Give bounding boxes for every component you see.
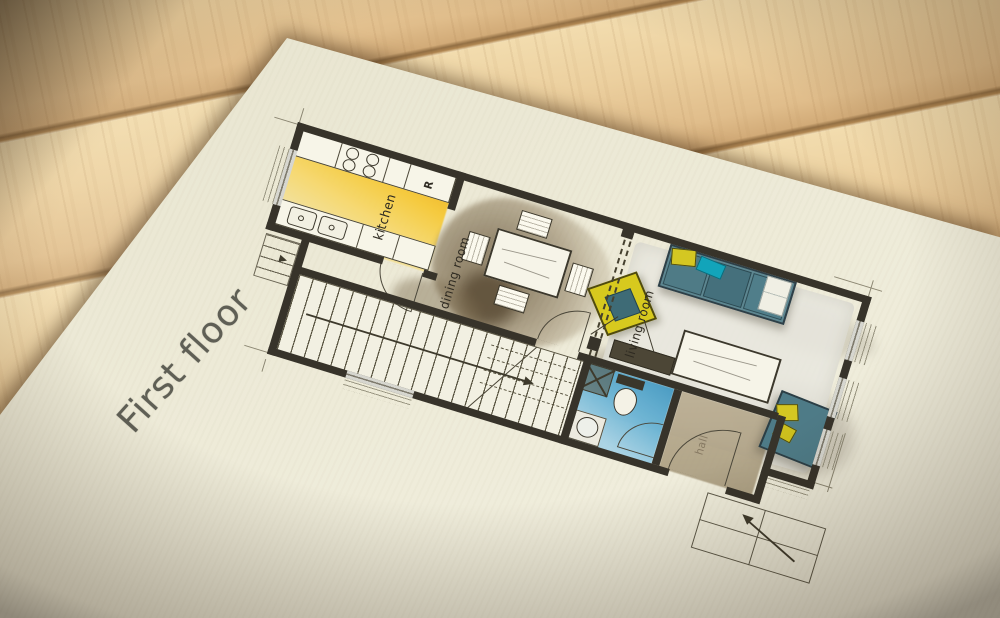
partition-post-top bbox=[621, 224, 636, 240]
page-title: First floor bbox=[93, 261, 277, 459]
paper-sheet: First floor bbox=[0, 0, 1000, 618]
dim-line bbox=[261, 359, 266, 372]
photo-scene: First floor bbox=[0, 0, 1000, 618]
paper-shadow-wrap: First floor bbox=[0, 0, 1000, 618]
dim-line bbox=[274, 117, 297, 125]
dim-line bbox=[244, 345, 269, 353]
dim-line bbox=[299, 108, 304, 123]
